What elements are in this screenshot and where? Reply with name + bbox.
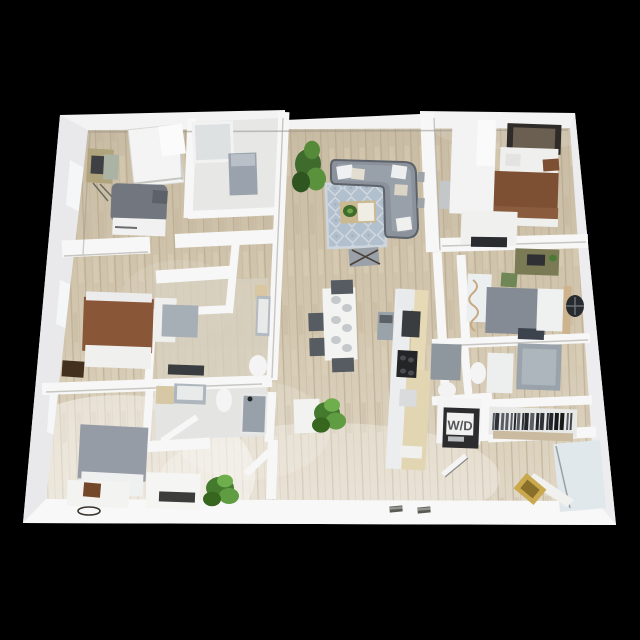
svg-text:W/D: W/D	[447, 418, 473, 434]
